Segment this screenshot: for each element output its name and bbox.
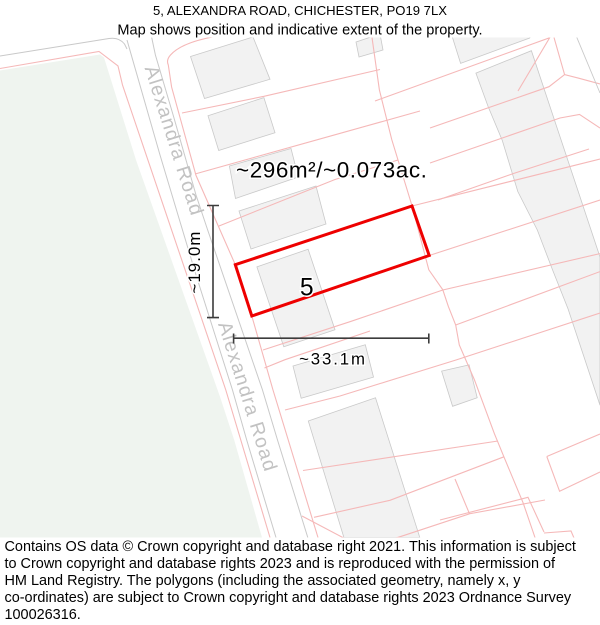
svg-text:Contains OS data © Crown copyr: Contains OS data © Crown copyright and d… (5, 539, 576, 555)
svg-text:~33.1m: ~33.1m (299, 350, 367, 369)
svg-text:to Crown copyright and databas: to Crown copyright and database rights 2… (5, 556, 557, 572)
svg-text:Map shows position and indicat: Map shows position and indicative extent… (117, 23, 482, 39)
svg-text:~19.0m: ~19.0m (185, 230, 204, 293)
svg-text:100026316.: 100026316. (5, 607, 81, 623)
svg-text:HM Land Registry. The polygons: HM Land Registry. The polygons (includin… (5, 573, 522, 589)
svg-text:~296m²/~0.073ac.: ~296m²/~0.073ac. (236, 157, 427, 182)
svg-text:5: 5 (300, 275, 314, 302)
svg-text:co-ordinates) are subject to C: co-ordinates) are subject to Crown copyr… (5, 590, 572, 606)
svg-text:5, ALEXANDRA ROAD, CHICHESTER,: 5, ALEXANDRA ROAD, CHICHESTER, PO19 7LX (153, 3, 447, 18)
